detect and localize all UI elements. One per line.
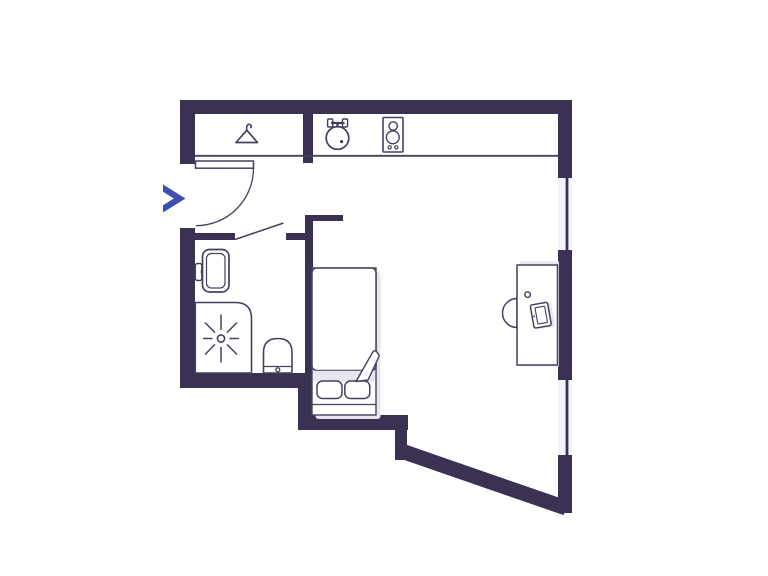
workstation [502,262,559,367]
pillow-icon [345,381,370,399]
toilet-icon [264,339,293,374]
bed-icon [312,268,381,419]
stove-body [383,118,403,153]
window-glyph [566,378,569,457]
chair-icon [502,299,517,328]
wall-top [180,100,572,114]
wall-nook-stub [305,215,343,221]
kitchen-sink-icon [326,119,349,149]
wall-left-lower [180,228,195,388]
wall-right-b [558,250,572,380]
laptop-icon [530,302,555,331]
door-swing-icon [196,168,254,226]
window-glyph [566,176,569,252]
window-gap [558,378,572,457]
wall-left-upper [180,100,195,164]
window-gap [558,176,572,252]
wall-right-c [558,455,572,513]
entrance-door [196,161,254,226]
wall-bath-door-stub-right [286,233,306,240]
shower-icon [195,303,251,374]
sink-bowl [326,127,349,150]
entrance-chevron-icon [163,185,186,213]
toilet-button [276,368,280,372]
wall-bathroom-south [180,373,313,388]
bathroom-door-leaf [235,223,284,240]
floor-plan-drawing [0,0,768,576]
floor-plan [0,0,768,576]
wash-basin-icon [195,250,229,293]
wall-bath-door-stub-left [195,233,235,240]
wall-right-a [558,100,572,178]
coat-hanger-icon [236,124,258,142]
hanger-hook [247,124,252,130]
stove-icon [383,118,403,153]
door-panel [196,161,254,168]
laptop-base [530,302,551,328]
pillow-icon [317,381,342,399]
hanger-body [236,130,258,142]
sink-drain [340,140,343,143]
bed-duvet [312,268,376,371]
wall-diagonal [400,451,566,509]
shower-drain [217,335,224,342]
